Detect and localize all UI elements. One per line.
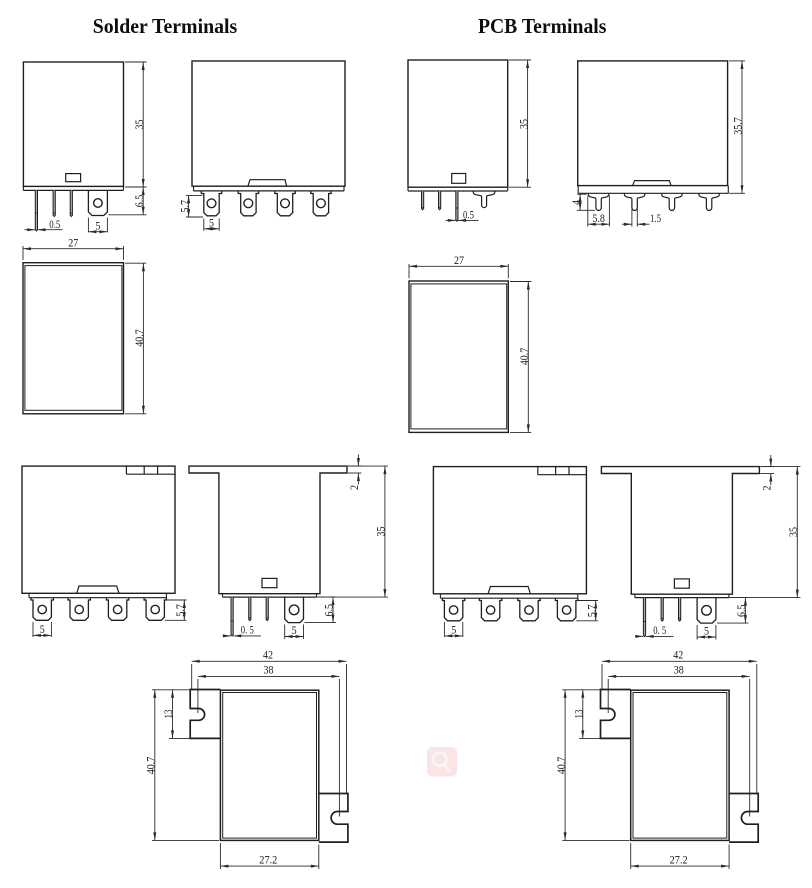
svg-text:5: 5 [451, 625, 456, 637]
svg-text:5.7: 5.7 [173, 604, 187, 617]
svg-text:27.2: 27.2 [259, 854, 277, 866]
svg-text:40.7: 40.7 [517, 348, 531, 366]
svg-text:35: 35 [374, 527, 388, 537]
svg-text:27: 27 [454, 255, 464, 267]
svg-text:27: 27 [68, 237, 78, 249]
svg-text:13: 13 [572, 710, 586, 719]
svg-text:5.7: 5.7 [584, 605, 598, 618]
svg-text:5.8: 5.8 [592, 213, 605, 225]
svg-text:5: 5 [209, 218, 214, 230]
svg-text:40.7: 40.7 [554, 757, 568, 775]
svg-text:38: 38 [674, 665, 684, 677]
svg-text:1.5: 1.5 [650, 213, 661, 225]
svg-text:0. 5: 0. 5 [653, 625, 666, 637]
svg-text:0.5: 0.5 [463, 209, 474, 221]
svg-text:42: 42 [673, 650, 683, 662]
svg-text:13: 13 [161, 710, 175, 719]
svg-text:0.5: 0.5 [49, 219, 60, 231]
svg-text:6.5: 6.5 [734, 604, 748, 617]
svg-text:4: 4 [569, 200, 583, 205]
svg-text:6.5: 6.5 [322, 604, 336, 617]
svg-text:Solder Terminals: Solder Terminals [93, 14, 238, 38]
svg-text:5: 5 [292, 625, 297, 637]
svg-text:PCB Terminals: PCB Terminals [478, 14, 607, 38]
svg-text:0. 5: 0. 5 [241, 625, 254, 637]
svg-text:5: 5 [95, 221, 100, 233]
svg-text:5: 5 [40, 624, 45, 636]
svg-text:5: 5 [704, 626, 709, 638]
svg-text:27.2: 27.2 [670, 854, 688, 866]
svg-text:42: 42 [263, 650, 273, 662]
svg-text:2: 2 [760, 486, 774, 491]
svg-text:35: 35 [786, 527, 800, 537]
svg-text:6.5: 6.5 [132, 195, 146, 208]
svg-text:35: 35 [516, 119, 530, 129]
svg-text:2: 2 [347, 485, 361, 490]
svg-text:35.7: 35.7 [731, 117, 745, 135]
svg-text:38: 38 [264, 665, 274, 677]
svg-text:40.7: 40.7 [132, 329, 146, 347]
svg-text:40.7: 40.7 [144, 757, 158, 775]
svg-text:35: 35 [132, 120, 146, 130]
svg-text:5.7: 5.7 [177, 200, 191, 213]
